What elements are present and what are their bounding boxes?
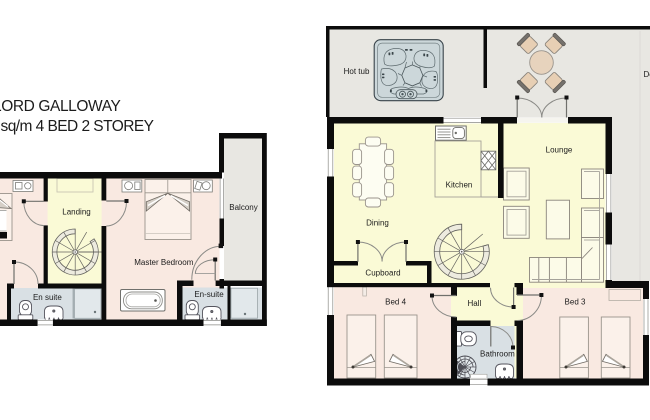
svg-text:Hot tub: Hot tub: [344, 67, 370, 76]
svg-text:Hall: Hall: [468, 299, 482, 308]
svg-text:Bathroom: Bathroom: [480, 350, 515, 359]
svg-text:En suite: En suite: [33, 293, 62, 302]
svg-text:Bed 3: Bed 3: [565, 298, 586, 307]
svg-text:sq/m 4 BED 2 STOREY: sq/m 4 BED 2 STOREY: [1, 118, 154, 135]
svg-text:Lounge: Lounge: [546, 146, 573, 155]
svg-text:Bed 4: Bed 4: [385, 297, 406, 306]
svg-text:Master Bedroom: Master Bedroom: [134, 258, 193, 267]
svg-text:Balcony: Balcony: [229, 203, 257, 212]
svg-text:Landing: Landing: [62, 208, 90, 217]
svg-text:Dining: Dining: [366, 218, 389, 227]
svg-text:Kitchen: Kitchen: [446, 180, 473, 189]
svg-text:Cupboard: Cupboard: [365, 269, 400, 278]
svg-text:En-suite: En-suite: [194, 290, 224, 299]
svg-text:LORD GALLOWAY: LORD GALLOWAY: [0, 98, 121, 115]
svg-text:Deck: Deck: [644, 70, 650, 79]
